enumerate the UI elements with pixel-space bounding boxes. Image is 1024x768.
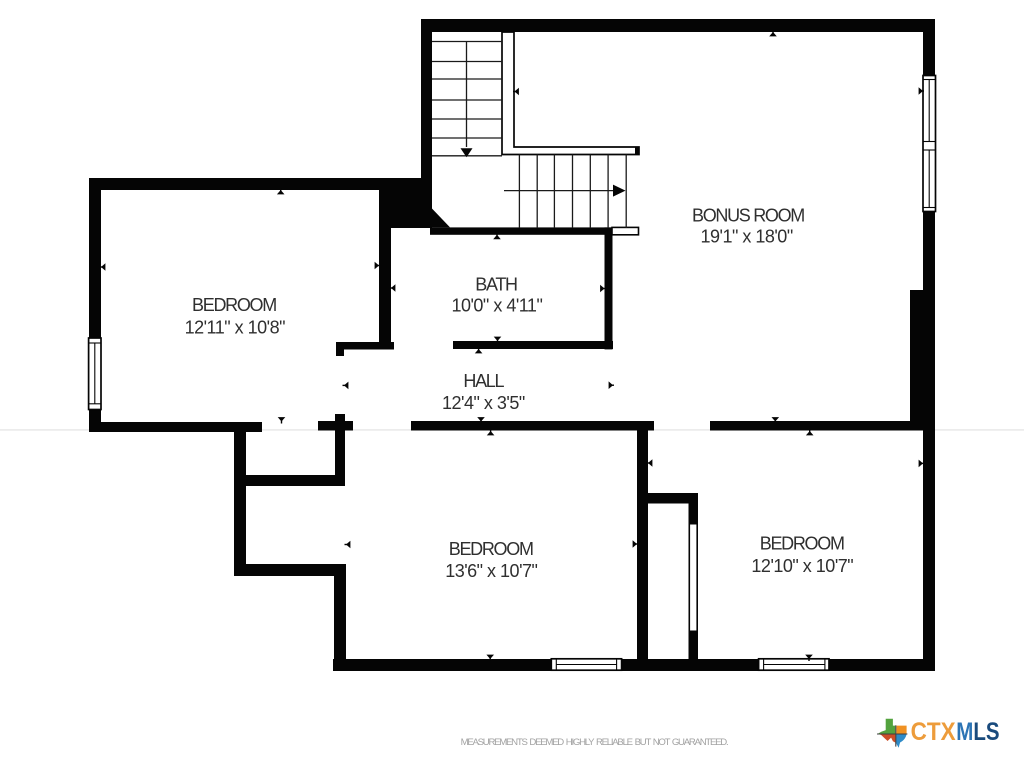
svg-text:BEDROOM: BEDROOM [760, 533, 844, 553]
svg-text:12'4" x 3'5": 12'4" x 3'5" [442, 393, 525, 413]
svg-text:BEDROOM: BEDROOM [449, 539, 533, 559]
svg-text:BONUS ROOM: BONUS ROOM [692, 206, 804, 226]
svg-text:12'10" x 10'7": 12'10" x 10'7" [751, 556, 853, 576]
svg-text:10'0" x 4'11": 10'0" x 4'11" [451, 295, 542, 315]
svg-text:MLS: MLS [956, 717, 999, 745]
svg-text:BEDROOM: BEDROOM [192, 295, 276, 315]
svg-text:19'1" x 18'0": 19'1" x 18'0" [700, 227, 792, 247]
svg-text:12'11" x 10'8": 12'11" x 10'8" [185, 318, 286, 338]
svg-text:HALL: HALL [463, 371, 504, 391]
svg-text:BATH: BATH [475, 275, 517, 295]
svg-text:13'6" x 10'7": 13'6" x 10'7" [445, 561, 537, 581]
svg-text:CTX: CTX [911, 718, 956, 746]
svg-text:MEASUREMENTS DEEMED HIGHLY REL: MEASUREMENTS DEEMED HIGHLY RELIABLE BUT … [461, 737, 728, 748]
